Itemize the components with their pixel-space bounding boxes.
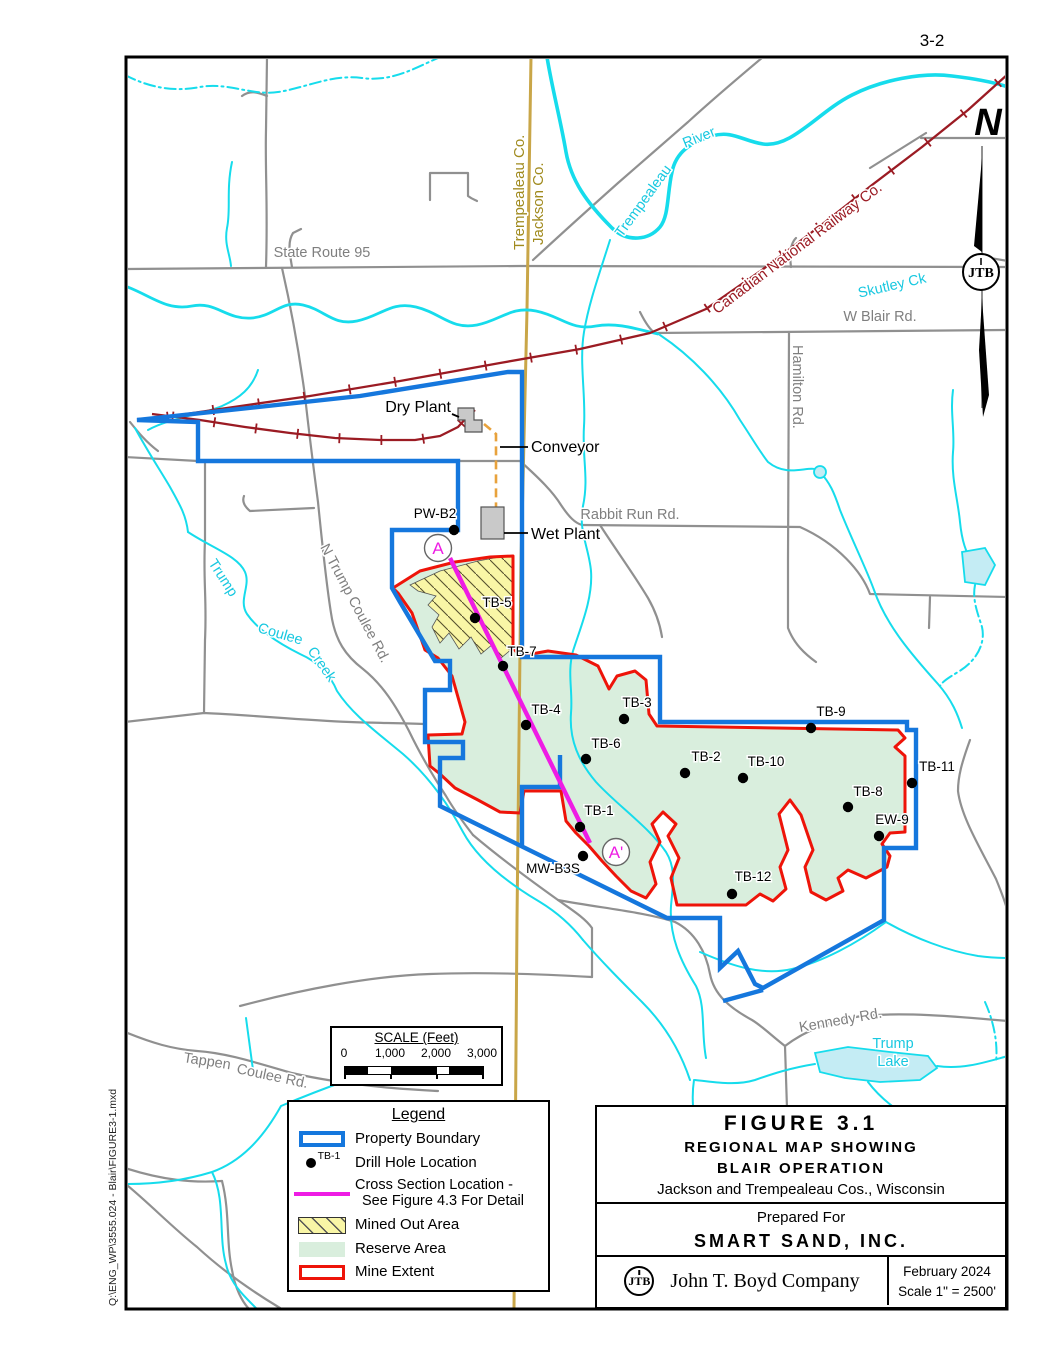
mined-out-swatch [298,1217,346,1234]
north-arrow-upper-fin [974,158,982,252]
drill-hole-dot [575,822,585,832]
drill-hole-label: TB-11 [919,759,955,774]
scale-tick-3000: 3,000 [467,1046,497,1060]
label-trump-lake-1: Trump [872,1036,913,1052]
legend-label: Mined Out Area [355,1217,459,1234]
label-trempealeau-county: Trempealeau Co. [511,135,528,250]
drill-hole-swatch [306,1158,316,1168]
drill-hole-label: TB-5 [482,595,511,610]
drill-hole-label: PW-B2 [414,506,457,521]
drill-hole-dot [738,773,748,783]
label-n-trump-coulee-rd: N Trump Coulee Rd. [316,541,392,665]
label-kennedy-rd: Kennedy Rd. [798,1006,883,1036]
legend-item-mined-out: Mined Out Area [289,1217,548,1234]
drill-hole-label: TB-10 [748,754,785,769]
map-labels: State Route 95 Trempealeau Co. Jackson C… [182,124,928,1092]
drill-hole-label: MW-B3S [526,861,580,876]
drill-hole-dot [907,778,917,788]
section-a-prime-label: A' [609,843,624,862]
prepared-for-label: Prepared For [597,1209,1005,1226]
drill-hole-ew-9: EW-9 [874,812,909,841]
legend-label: Mine Extent [355,1264,434,1281]
legend-label: Reserve Area [355,1241,446,1258]
trump-lake-polygon [815,1047,937,1082]
legend: Legend Property Boundary TB-1 Drill Hole… [287,1100,550,1292]
label-state-route-95: State Route 95 [274,245,371,261]
legend-item-drill-hole: TB-1 Drill Hole Location [289,1155,548,1172]
drill-hole-dot [874,831,884,841]
jtb-logo-small: JTB [624,1266,654,1296]
label-rabbit-run-rd: Rabbit Run Rd. [580,507,679,523]
legend-title: Legend [289,1106,548,1124]
property-boundary-swatch [299,1131,345,1147]
label-trump-creek: Trump [205,556,241,599]
figure-location: Jackson and Trempealeau Cos., Wisconsin [597,1181,1005,1198]
legend-label: Cross Section Location - [355,1178,524,1194]
drill-hole-dot [843,802,853,812]
label-dry-plant: Dry Plant [385,399,451,416]
figure-title-line1: REGIONAL MAP SHOWING [597,1139,1005,1156]
label-tappen-coulee-rd: Coulee Rd. [235,1061,309,1092]
drill-hole-dot [449,525,459,535]
drill-hole-dot [498,661,508,671]
cross-section-swatch [294,1192,350,1197]
figure-number: FIGURE 3.1 [597,1112,1005,1136]
drill-hole-label: TB-12 [735,869,772,884]
scale-tick-2000: 2,000 [421,1046,451,1060]
label-w-blair-rd: W Blair Rd. [843,309,916,325]
drill-hole-label: TB-7 [507,644,536,659]
label-wet-plant: Wet Plant [531,526,601,543]
label-tappen: Tappen [182,1050,231,1073]
dry-plant-building [458,408,482,432]
legend-label: Property Boundary [355,1131,480,1148]
drill-hole-dot [806,723,816,733]
label-creek: Creek [304,644,340,685]
figure-scale: Scale 1" = 2500' [889,1284,1005,1299]
legend-item-cross-section: Cross Section Location - See Figure 4.3 … [289,1178,548,1210]
page-number: 3-2 [920,31,945,50]
jtb-logo-text: JTB [968,266,994,281]
label-trempealeau-river-2: River [681,124,719,152]
label-conveyor: Conveyor [531,439,600,456]
drill-hole-label: TB-9 [816,704,845,719]
drill-hole-label: TB-4 [531,702,561,717]
legend-item-mine-extent: Mine Extent [289,1264,548,1281]
drill-hole-dot [581,754,591,764]
figure-title-line2: BLAIR OPERATION [597,1160,1005,1177]
label-hamilton-rd: Hamilton Rd. [789,345,805,429]
legend-label-line2: See Figure 4.3 For Detail [355,1194,524,1210]
drill-hole-label: TB-1 [584,803,613,818]
drill-hole-dot [470,613,480,623]
mine-extent-swatch [299,1265,345,1280]
legend-label: Drill Hole Location [355,1155,477,1172]
drill-hole-dot [680,768,690,778]
drill-hole-dot [521,720,531,730]
legend-item-property-boundary: Property Boundary [289,1131,548,1148]
drill-hole-sample-label: TB-1 [318,1150,341,1162]
scale-bar: SCALE (Feet) 0 1,000 2,000 3,000 [330,1026,503,1086]
drill-hole-label: TB-3 [622,695,651,710]
north-arrow-lower-fin [979,298,989,417]
drill-hole-label: TB-6 [591,736,620,751]
scale-bar-title: SCALE (Feet) [332,1030,501,1045]
conveyor-line [484,424,496,507]
label-trempealeau-river-1: Trempealeau [612,162,675,240]
label-trump-lake-2: Lake [877,1054,908,1070]
legend-item-reserve: Reserve Area [289,1241,548,1258]
drill-hole-dot [619,714,629,724]
facilities [452,408,528,539]
label-jackson-county: Jackson Co. [530,162,547,245]
company-name: John T. Boyd Company [670,1270,859,1293]
scale-tick-1000: 1,000 [375,1046,405,1060]
drill-hole-label: EW-9 [875,812,909,827]
figure-page: 3-2 Q:\ENG_WP\3555.024 - Blair\FIGURE3-1… [0,0,1055,1365]
drill-hole-dot [578,851,588,861]
client-name: SMART SAND, INC. [597,1231,1005,1252]
wet-plant-building [481,507,504,539]
label-coulee-creek: Coulee [256,620,305,648]
scale-tick-0: 0 [341,1046,348,1060]
drill-hole-label: TB-8 [853,784,882,799]
drill-hole-dot [727,889,737,899]
label-skutley-creek: Skutley Ck [857,270,929,301]
scale-bar-graphic [344,1066,484,1075]
file-path-label: Q:\ENG_WP\3555.024 - Blair\FIGURE3-1.mxd [107,1089,119,1306]
reserve-swatch [299,1242,345,1257]
north-label: N [974,102,1003,144]
drill-hole-label: TB-2 [691,749,720,764]
section-a-label: A [432,539,444,558]
figure-date: February 2024 [889,1264,1005,1279]
title-block: FIGURE 3.1 REGIONAL MAP SHOWING BLAIR OP… [595,1105,1007,1309]
